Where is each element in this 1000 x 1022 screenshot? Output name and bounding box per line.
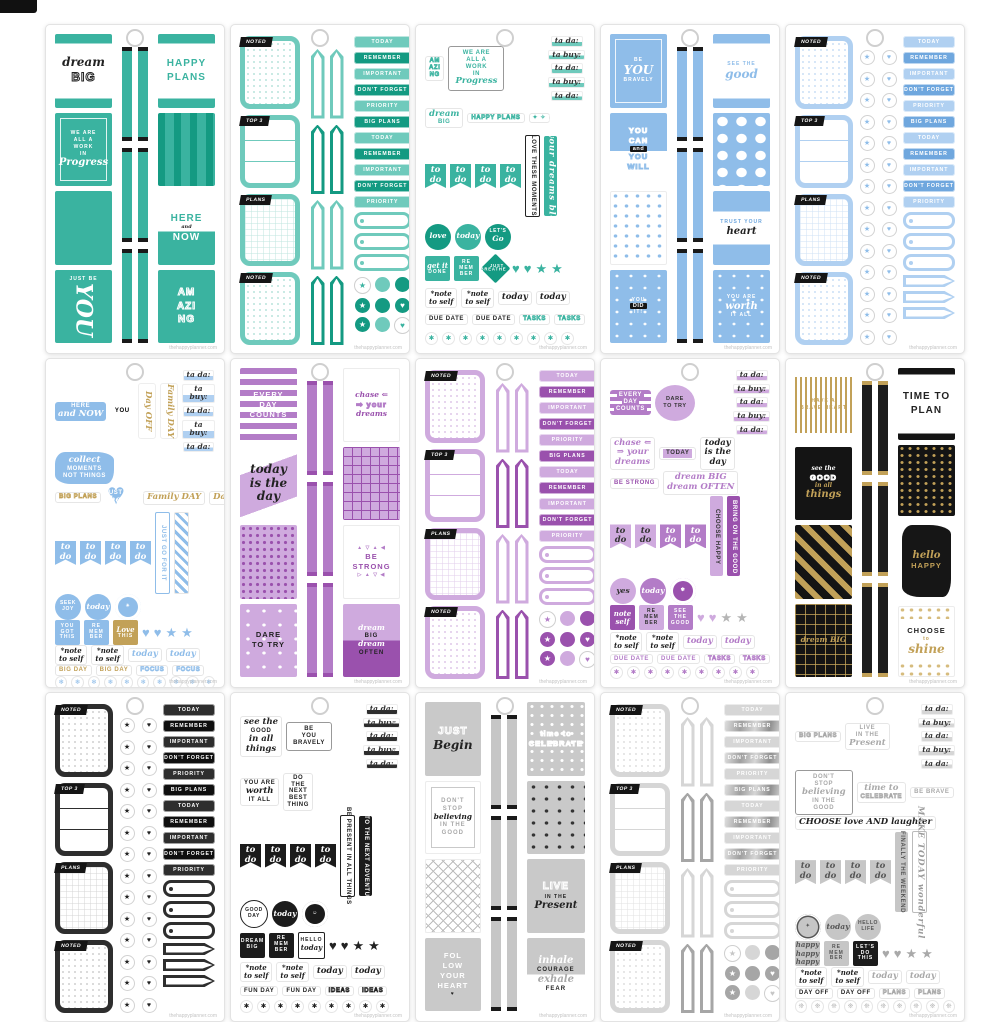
word-line: worth (246, 787, 274, 797)
star-dot-icon: ★ (120, 976, 135, 991)
block-text: IN THE (545, 894, 567, 901)
circle-sticker: ★ (725, 985, 740, 1000)
word-line: YOU (302, 733, 317, 740)
sticker-word: REMEMBER (639, 605, 664, 630)
sticker-word: ✱ (712, 666, 725, 679)
word-line: today (301, 944, 322, 952)
word-line: BIG DAY (59, 667, 88, 674)
tada-label: ta buy: (548, 77, 585, 88)
vertical-arrow-flag (681, 793, 695, 863)
block-text: time to (540, 729, 572, 739)
sticker-block: DARE TO TRY (240, 604, 297, 678)
word-line: dreams (615, 458, 650, 468)
tab-box-label: NOTED (239, 273, 273, 283)
word-line: Day OFF (142, 391, 152, 431)
washi-segment (677, 47, 687, 141)
washi-strips (117, 34, 153, 343)
word-line: BER (830, 956, 844, 962)
arrow-inner (684, 871, 692, 935)
word-line: today (87, 603, 110, 612)
sticker-word: TASKS (519, 314, 550, 325)
block-text: IT ALL (731, 312, 752, 319)
sticker-word: ✱ (240, 1000, 253, 1013)
extra-circles: ★★♥★♥ (539, 611, 595, 668)
label-pill: PRIORITY (724, 864, 780, 876)
word-line: COUNTS (614, 406, 647, 413)
bullet-box (724, 922, 780, 939)
arrow-inner (499, 386, 507, 450)
sticker-word: ✱ (527, 332, 540, 345)
tab-box: TOP 3 (610, 783, 670, 856)
star-dot-icon: ★ (120, 718, 135, 733)
tab-box-label: NOTED (794, 37, 828, 47)
word-line: BRING ON THE GOOD (730, 500, 737, 574)
sticker-block: see theGOODin allthings (795, 447, 852, 521)
word-line: to self (799, 977, 823, 985)
label-pill: IMPORTANT (539, 402, 595, 414)
blocks-layout: dreamBIGWE ARE ALL A WORK INProgressJUST… (55, 34, 215, 343)
block-text: believing (434, 813, 472, 821)
word-line: do (245, 856, 257, 866)
sticker-word: LET'SGo (485, 224, 511, 250)
sticker-word: BE STRONG (610, 478, 659, 489)
glyph: ♥ (882, 947, 890, 960)
word-line: see the (244, 718, 278, 728)
hang-hole (681, 697, 699, 715)
arrow-inner (703, 947, 711, 1011)
sticker-word: ❄ (88, 676, 100, 688)
circle-sticker (745, 945, 760, 960)
washi-segment (122, 249, 132, 343)
arrow-inner (906, 310, 953, 317)
sticker-word: REMEMBER (824, 941, 849, 966)
sticker-word: IDEAS (358, 986, 387, 997)
boxes-layout: NOTEDTOP 3PLANSNOTEDTODAYREMEMBERIMPORTA… (425, 368, 585, 679)
sticker-word: ❊ (811, 1000, 823, 1013)
glyph: ★ (535, 262, 547, 275)
frame-line (430, 786, 476, 850)
dot-circle-row: ★♥ (858, 201, 898, 216)
label-pill: DON'T FORGET (539, 418, 595, 430)
circle-sticker: ★ (540, 632, 555, 647)
glyph: ✱ (514, 335, 519, 342)
vertical-arrow-flag (681, 944, 695, 1014)
dot-circle-row: ★♥ (118, 869, 158, 884)
sticker-word: ★ (551, 262, 563, 275)
bullet-dot (169, 929, 173, 933)
word-line: do (690, 536, 702, 546)
sticker-word: *noteto self (276, 962, 308, 982)
glyph: ❊ (864, 1003, 869, 1010)
sticker-word: REMEMBER (269, 933, 294, 958)
arrow-inner (499, 537, 507, 601)
word-line: TODAY (663, 449, 692, 458)
hang-hole (126, 697, 144, 715)
sticker-block: dreamBIG (55, 34, 112, 108)
sticker-word: todo (685, 524, 706, 548)
word-line: today (827, 923, 850, 932)
sticker-word: FUN DAY (282, 986, 320, 997)
washi-segment (307, 583, 317, 677)
word-line: do (640, 536, 652, 546)
word-line: Present (849, 739, 886, 749)
arrow-flag (903, 275, 955, 287)
tada-label: ta da: (183, 406, 215, 417)
word-line: THE (291, 782, 305, 789)
sticker-block: HEREandNOW (158, 191, 215, 265)
heart-dot-icon: ♥ (882, 201, 897, 216)
block-column-right: chase ⇐⇒ yourdreams▲ ▽ ▲ ◀BE STRONG▷ ▲ ▽… (343, 368, 400, 677)
word-line: do (480, 176, 492, 186)
word-line: DUE DATE (661, 656, 696, 663)
bullet-box (903, 254, 955, 271)
bullet-box (163, 880, 215, 897)
sticker-word: ★ (352, 939, 364, 952)
bullet-box (903, 233, 955, 250)
circle-sticker: ★ (354, 277, 371, 294)
sticker-word: GOODDAY (240, 900, 268, 928)
label-pill: DON'T FORGET (724, 752, 780, 764)
block-text: inhale (538, 955, 573, 966)
word-line: love (430, 232, 447, 241)
sticker-word: YOU (110, 374, 134, 448)
word-sticker-layout: AMAZINGWE AREALL AWORKINProgressta da:ta… (425, 34, 585, 345)
sticker-word: ★ (921, 947, 933, 960)
word-line: AZI (429, 65, 440, 72)
heart-dot-icon: ♥ (142, 890, 157, 905)
arrow-inner (518, 537, 526, 601)
sticker-word: ✱ (544, 332, 557, 345)
word-line: GOOD (813, 805, 834, 812)
washi-strip (878, 381, 888, 677)
word-line: TASKS (743, 656, 766, 663)
word-line: BIG PLANS (59, 494, 97, 501)
dot-circle-row: ★♥ (858, 136, 898, 151)
vertical-arrow-flag (700, 868, 714, 938)
word-line: today (457, 232, 480, 241)
label-pill: IMPORTANT (354, 68, 410, 80)
tab-box-column: NOTEDTOP 3PLANSNOTED (610, 704, 670, 1013)
block-column-left: dreamBIGWE ARE ALL A WORK INProgressJUST… (55, 34, 112, 343)
hang-hole (866, 29, 884, 47)
word-line: today (540, 293, 566, 303)
vertical-arrow-flag (681, 868, 695, 938)
circle-sticker: ★ (539, 611, 556, 628)
arrow-inner (333, 279, 341, 343)
heart-dot-icon: ♥ (142, 740, 157, 755)
arrow-inner (499, 613, 507, 677)
arrow-flag (163, 959, 215, 971)
middle-column (305, 36, 349, 345)
sticker-word: Day OFF (209, 491, 225, 505)
tab-box: NOTED (425, 606, 485, 679)
block-column-left: HAVE A BRAVE HEARTsee theGOODin allthing… (795, 368, 852, 677)
sticker-word: todo (265, 844, 286, 868)
sticker-word: HEREand NOW (55, 402, 106, 421)
vertical-arrow-flag (496, 383, 510, 453)
sticker-word: ✱ (459, 332, 472, 345)
block-column-right: TIME TO PLANhelloHAPPYCHOOSEtoshine (898, 368, 955, 677)
arrow-inner (684, 947, 692, 1011)
sticker-row: ✱✱✱✱✱✱✱✱✱ (425, 332, 585, 345)
star-dot-icon: ★ (860, 179, 875, 194)
label-pill: PRIORITY (903, 100, 955, 112)
sticker-sheet-12: see theGOODin allthingsBEYOUBRAVELYta da… (230, 692, 410, 1022)
sticker-word: YOU AREworthIT ALL (240, 778, 279, 806)
block-text: shine (908, 643, 944, 656)
sticker-block: YOU CANandYOU WILL (610, 113, 667, 187)
word-line: do (295, 856, 307, 866)
word-line: LOVE THESE MOMENTS (529, 135, 536, 216)
word-line: NG (430, 72, 440, 79)
dot-circle-row: ★♥ (858, 93, 898, 108)
word-line: FINALLY THE WEEKEND (898, 831, 905, 913)
word-line: HAPPY PLANS (471, 115, 520, 122)
hang-hole (681, 363, 699, 381)
sticker-row: *noteto self*noteto selftodaytoday (795, 967, 955, 987)
label-pill: BIG PLANS (163, 784, 215, 796)
tab-box: PLANS (610, 862, 670, 935)
sticker-word: HAPPY PLANS (467, 113, 524, 124)
sticker-block (158, 113, 215, 187)
tada-label: ta da: (366, 731, 398, 742)
glyph: ✱ (244, 1003, 249, 1010)
star-dot-icon: ★ (120, 912, 135, 927)
middle-column (675, 704, 719, 1013)
blocks-layout: EVERY DAY COUNTStoday is the dayDARE TO … (240, 368, 400, 677)
sheet-footer-text: thehappyplanner.com (169, 679, 217, 685)
bullet-box (354, 212, 410, 229)
heart-dot-icon: ♥ (142, 976, 157, 991)
circle-sticker (580, 611, 595, 626)
sticker-word: ✱ (627, 666, 640, 679)
tab-box-label: NOTED (424, 371, 458, 381)
glyph: ♥ (329, 939, 337, 952)
sticker-word: LIVEIN THEPresent (845, 723, 890, 751)
washi-segment (122, 148, 132, 242)
boxes-layout: NOTEDTOP 3PLANSNOTEDTODAYREMEMBERIMPORTA… (610, 702, 770, 1013)
sticker-word: ✱ (729, 666, 742, 679)
sticker-word: ✱ (493, 332, 506, 345)
word-line: do (85, 553, 97, 563)
sticker-word: happyhappyhappy (795, 941, 820, 966)
sticker-block: dream BIG (795, 604, 852, 678)
sticker-block (343, 447, 400, 521)
heart-dot-icon: ♥ (142, 826, 157, 841)
sticker-row: ✱✱✱✱✱✱✱✱✱ (610, 666, 770, 679)
sticker-word: today (868, 970, 902, 984)
word-line: TASKS (523, 316, 546, 323)
sticker-block: time toCELEBRATE (527, 702, 585, 776)
boxes-layout: NOTEDTOP 3PLANSNOTED★♥★♥★♥★♥★♥★♥★♥★♥★♥★♥… (55, 702, 215, 1013)
heart-dot-icon: ♥ (882, 93, 897, 108)
block-text: see the (811, 466, 835, 473)
star-dot-icon: ★ (120, 998, 135, 1013)
block-text: good (725, 68, 758, 81)
glyph: ❊ (913, 1003, 918, 1010)
star-dot-icon: ★ (120, 869, 135, 884)
tada-label: ta da: (551, 63, 583, 74)
label-pill: DON'T FORGET (903, 84, 955, 96)
label-pill: IMPORTANT (903, 68, 955, 80)
sticker-word: JUSTBREATHE (481, 254, 511, 284)
sticker-word: DAY OFF (837, 988, 875, 999)
sticker-block: LIVEIN THEPresent (527, 859, 585, 933)
tab-box-label: NOTED (424, 607, 458, 617)
star-dot-icon: ★ (860, 265, 875, 280)
word-line: BEST (289, 795, 307, 802)
label-pill: BIG PLANS (354, 116, 410, 128)
label-pill: TODAY (724, 800, 780, 812)
word-line: to self (244, 972, 268, 980)
sticker-row: chase ⇐⇒ yourdreamsTODAYtodayis theday (610, 437, 770, 470)
sticker-block (527, 781, 585, 855)
sticker-word: ✱ (308, 1000, 321, 1013)
bullet-box (724, 880, 780, 897)
word-line: today (642, 587, 665, 596)
arrow-inner (703, 796, 711, 860)
sticker-block: chase ⇐⇒ yourdreams (343, 368, 400, 442)
label-pill: TODAY (724, 704, 780, 716)
glyph: ✱ (363, 1003, 368, 1010)
sticker-sheet-10: HAVE A BRAVE HEARTsee theGOODin allthing… (785, 358, 965, 688)
washi-strip (862, 381, 872, 677)
vertical-arrow-flag (330, 49, 344, 119)
tada-label: ta buy: (182, 420, 215, 439)
label-pill: BIG PLANS (903, 116, 955, 128)
word-line: BER (90, 635, 104, 641)
sticker-row: GOODDAYtoday☺ (240, 900, 400, 928)
word-line: today (502, 293, 528, 303)
word-line: do (825, 872, 837, 882)
block-text: YOU WILL (627, 152, 649, 172)
block-text: YOU ARE (727, 294, 757, 301)
block-text: heart (727, 226, 757, 237)
sticker-block: HAPPY PLANS (158, 34, 215, 108)
label-pill: DON'T FORGET (724, 848, 780, 860)
sticker-word: get itDONE (425, 256, 450, 281)
arrow-inner (166, 946, 213, 953)
sticker-sheet-15: BIG PLANSLIVEIN THEPresentta da:ta buy:t… (785, 692, 965, 1022)
block-text: LIVE (543, 880, 569, 894)
word-line: to self (95, 655, 119, 663)
word-line: today (317, 967, 343, 977)
sticker-word: HELLOtoday (298, 932, 325, 959)
sticker-sheet-14: NOTEDTOP 3PLANSNOTEDTODAYREMEMBERIMPORTA… (600, 692, 780, 1022)
bullet-box (539, 546, 595, 563)
tab-box-label: TOP 3 (794, 116, 825, 126)
sticker-block: WE ARE ALL A WORK INProgress (55, 113, 112, 187)
word-line: do (875, 872, 887, 882)
sticker-sheet-6: HEREand NOWYOUDay OFFFamily DAYta da:ta … (45, 358, 225, 688)
word-line: BE (304, 726, 314, 733)
hang-hole (866, 697, 884, 715)
arrow-inner (333, 52, 341, 116)
sticker-row: get itDONEREMEMBERJUSTBREATHE♥♥★★ (425, 256, 585, 281)
sticker-word: today (825, 914, 851, 940)
word-sticker-layout: EVERYDAYCOUNTSDARETO TRYta da:ta buy:ta … (610, 368, 770, 679)
heart-dot-icon: ♥ (882, 244, 897, 259)
bullet-box (354, 233, 410, 250)
sticker-word: DON'TSTOPbelievingIN THEGOOD (795, 770, 853, 815)
sticker-word: *noteto self (646, 632, 678, 652)
sticker-word: *noteto self (461, 288, 493, 308)
block-text: today is the day (250, 463, 287, 503)
word-line: BIG (438, 119, 450, 126)
arrow-inner (906, 278, 953, 285)
bullet-box (539, 588, 595, 605)
sheet-footer-text: thehappyplanner.com (354, 345, 402, 351)
arrow-flag-pair (305, 200, 349, 270)
dot-circle-row: ★♥ (118, 890, 158, 905)
tab-box-label: PLANS (239, 195, 272, 205)
glyph: ✱ (380, 1003, 385, 1010)
word-line: EVERY (617, 392, 644, 399)
blocks-layout: BEYOUBRAVELYYOU CANandYOU WILLYOUDIDIT!S… (610, 34, 770, 343)
label-pill: DON'T FORGET (539, 514, 595, 526)
arrow-inner (684, 796, 692, 860)
heart-dot-icon: ♥ (142, 847, 157, 862)
washi-segment (693, 47, 703, 141)
sticker-word: todo (240, 844, 261, 868)
sticker-word: Family DAY (143, 491, 205, 505)
word-line: to self (650, 642, 674, 650)
sticker-word: ❊ (943, 1000, 955, 1013)
word-line: heart (109, 496, 135, 506)
washi-strip (138, 47, 148, 343)
washi-segment (862, 381, 872, 475)
washi-strip (693, 47, 703, 343)
label-pill: TODAY (354, 132, 410, 144)
tab-box-label: PLANS (794, 195, 827, 205)
hang-hole (311, 363, 329, 381)
tab-box-label: TOP 3 (609, 784, 640, 794)
bullet-dot (909, 219, 913, 223)
sticker-word: todo (820, 860, 841, 884)
circle-sticker: ★ (355, 298, 370, 313)
word-line: ALL A (466, 57, 486, 64)
tab-box: NOTED (240, 272, 300, 345)
word-line: LIVE (859, 725, 875, 732)
block-text: dream (62, 56, 105, 69)
label-pill: IMPORTANT (539, 498, 595, 510)
hang-hole (126, 29, 144, 47)
block-text: IN THE GOOD (440, 821, 466, 837)
washi-strip (323, 381, 333, 677)
block-text: DARE TO TRY (252, 630, 285, 650)
word-line: do (270, 856, 282, 866)
arrow-flag-pair (490, 383, 534, 453)
star-dot-icon: ★ (860, 50, 875, 65)
label-pill: TODAY (903, 36, 955, 48)
sticker-block: SEE THEgood (713, 34, 770, 108)
sticker-word: todo (80, 541, 101, 565)
sticker-word: todo (660, 524, 681, 548)
sticker-word: ✱ (510, 332, 523, 345)
tada-label: ta buy: (918, 745, 955, 756)
label-pill: DON'T FORGET (354, 180, 410, 192)
dot-circle-row: ★♥ (118, 976, 158, 991)
word-line: today (910, 972, 936, 982)
tab-box: NOTED (55, 940, 113, 1013)
block-column-left: EVERY DAY COUNTStoday is the dayDARE TO … (240, 368, 297, 677)
sticker-sheet-1: dreamBIGWE ARE ALL A WORK INProgressJUST… (45, 24, 225, 354)
sticker-sheet-8: NOTEDTOP 3PLANSNOTEDTODAYREMEMBERIMPORTA… (415, 358, 595, 688)
tada-label: ta da: (921, 759, 953, 770)
sticker-block (610, 191, 667, 265)
block-column-right: time toCELEBRATELIVEIN THEPresentinhaleC… (527, 702, 585, 1011)
sticker-word: ★ (905, 947, 917, 960)
